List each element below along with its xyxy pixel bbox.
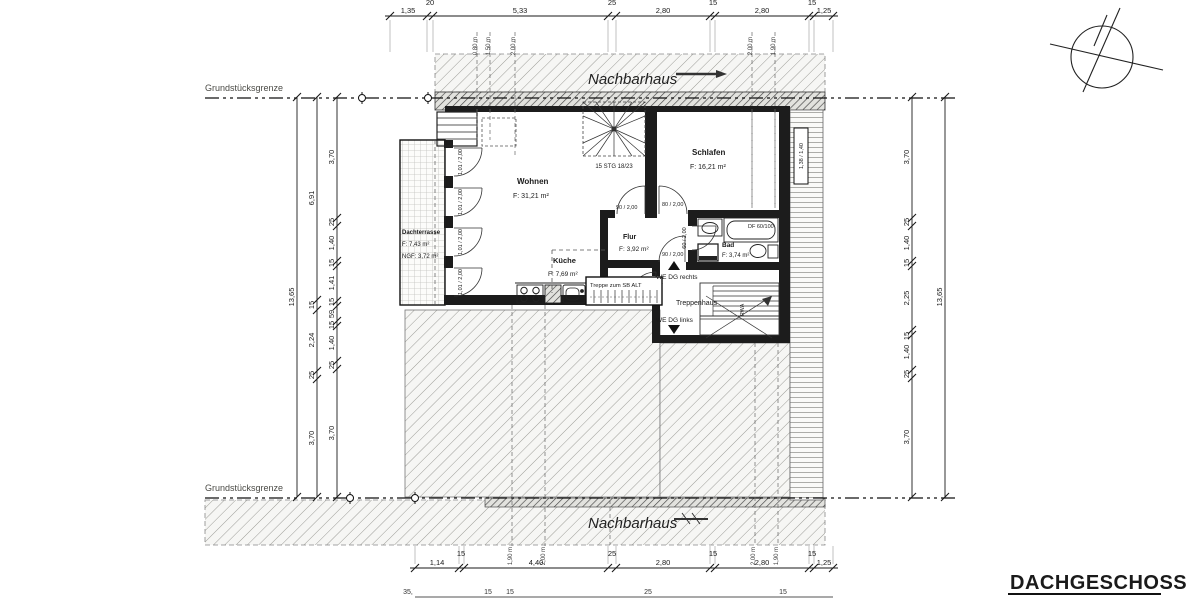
- dim-right-inner-3: 15: [902, 259, 911, 267]
- dachterrasse-area: F: 7,43 m²: [402, 242, 429, 248]
- dachterrasse-label: Dachterrasse: [402, 230, 441, 236]
- dim-bottom2-2: 15: [506, 589, 514, 596]
- dim-left-outer: 13,65: [287, 288, 296, 307]
- dim-bottom-5: 15: [709, 549, 717, 558]
- dachterrasse: Dachterrasse F: 7,43 m² NGF: 3,72 m²: [400, 140, 445, 305]
- rwa-label: RWA: [740, 303, 746, 316]
- plan-title-block: DACHGESCHOSS: [1008, 572, 1187, 594]
- dim-left-mid-3: 25: [307, 371, 316, 379]
- dim-top-8: 1,25: [817, 6, 832, 15]
- we-right-door-label: 90 / 2,00: [662, 252, 683, 258]
- dim-top-0: 1,35: [401, 6, 416, 15]
- dim-left-mid-0: 6,91: [307, 191, 316, 206]
- dim-top-7: 15: [808, 0, 816, 7]
- boundary-bottom-label: Grundstücksgrenze: [205, 483, 283, 493]
- dim-left-inner-2: 1,40: [327, 236, 336, 251]
- dim-right-inner-2: 1,40: [902, 236, 911, 251]
- height-top-0: 0,80 m: [473, 37, 479, 55]
- dim-right-inner-7: 25: [902, 370, 911, 378]
- side-window-label: 1,38 / 1,40: [799, 143, 805, 169]
- dim-right-inner-5: 15: [902, 332, 911, 340]
- dim-left-inner-3: 15: [327, 259, 336, 267]
- height-top-2: 2,00 m: [511, 37, 517, 55]
- height-top-3: 2,00 m: [748, 37, 754, 55]
- bad-door-label: 60 / 2,00: [682, 227, 688, 248]
- height-bottom-0: 1,90 m: [508, 547, 514, 565]
- dim-bottom-1: 15: [457, 549, 465, 558]
- dim-top-1: 20: [426, 0, 434, 7]
- dim-right-inner-8: 3,70: [902, 430, 911, 445]
- neighbor-building-bottom: Nachbarhaus: [205, 498, 825, 545]
- boundary-top-label: Grundstücksgrenze: [205, 83, 283, 93]
- dim-bottom2-3: 25: [644, 589, 652, 596]
- dim-bottom2-0: 35,: [403, 589, 413, 596]
- dim-bottom-8: 1,25: [817, 558, 832, 567]
- flur-area: F: 3,92 m²: [619, 246, 649, 253]
- terrace-door-label-3: 1,01 / 2,00: [458, 229, 464, 255]
- dim-left-inner-10: 3,70: [327, 426, 336, 441]
- dim-right-inner-4: 2,25: [902, 291, 911, 306]
- dim-top-3: 25: [608, 0, 616, 7]
- terrace-door-label-1: 1,01 / 2,00: [458, 149, 464, 175]
- dim-bottom-6: 2,80: [755, 558, 770, 567]
- height-bottom-3: 1,90 m: [774, 547, 780, 565]
- attic-stair-label: Treppe zum SB ALT: [590, 283, 642, 289]
- roof-strip: 1,38 / 1,40: [790, 110, 823, 500]
- flur-door-label: 90 / 2,00: [616, 205, 637, 211]
- bad-label: Bad: [722, 242, 734, 249]
- dim-top-5: 15: [709, 0, 717, 7]
- spiral-stair-label: 15 STG 18/23: [595, 164, 633, 170]
- dim-bottom2-4: 15: [779, 589, 787, 596]
- neighbor-bottom-label: Nachbarhaus: [588, 515, 678, 532]
- neighbor-top-label: Nachbarhaus: [588, 71, 678, 88]
- dim-left-inner-6: 59: [327, 310, 336, 318]
- dim-bottom-0: 1,14: [430, 558, 445, 567]
- wohnen-area: F: 31,21 m²: [513, 193, 549, 200]
- dim-left-inner-7: 15: [327, 321, 336, 329]
- terrace-door-label-2: 1,01 / 2,00: [458, 189, 464, 215]
- plan-title: DACHGESCHOSS: [1010, 572, 1187, 594]
- dim-bottom-3: 25: [608, 549, 616, 558]
- kueche-area: F: 7,69 m²: [548, 271, 578, 278]
- dim-bottom-4: 2,80: [656, 558, 671, 567]
- terrace-door-label-4: 1,01 / 2,00: [458, 269, 464, 295]
- height-top-1: 1,50 m: [486, 37, 492, 55]
- dim-top-2: 5,33: [513, 6, 528, 15]
- dim-left-mid-2: 2,24: [307, 333, 316, 348]
- dim-left-inner-4: 1,41: [327, 276, 336, 291]
- dim-right-inner-1: 25: [902, 218, 911, 226]
- dim-top-4: 2,80: [656, 6, 671, 15]
- dim-bottom-7: 15: [808, 549, 816, 558]
- bad-area: F: 3,74 m²: [722, 253, 749, 259]
- plan-drawing: Nachbarhaus Nachbarhaus 1,38 / 1,40 Dach…: [0, 0, 1200, 600]
- kueche-label: Küche: [553, 256, 576, 265]
- dim-left-inner-0: 3,70: [327, 150, 336, 165]
- dachterrasse-ngf: NGF: 3,72 m²: [402, 254, 438, 260]
- we-left-label: WE DG links: [656, 317, 694, 324]
- dim-bottom-2: 4,40: [529, 558, 544, 567]
- roof-window-label: DF 60/100: [748, 224, 774, 230]
- dim-left-mid-4: 3,70: [307, 431, 316, 446]
- flur-label: Flur: [623, 234, 636, 241]
- schlafen-label: Schlafen: [692, 148, 725, 157]
- schlafen-area: F: 16,21 m²: [690, 164, 726, 171]
- schlafen-door-label: 80 / 2,00: [662, 202, 683, 208]
- kitchen-appliance: [545, 285, 561, 303]
- wohnen-label: Wohnen: [517, 177, 549, 186]
- dim-right-outer: 13,65: [935, 288, 944, 307]
- floor-plan-sheet: Nachbarhaus Nachbarhaus 1,38 / 1,40 Dach…: [0, 0, 1200, 600]
- dim-top-6: 2,80: [755, 6, 770, 15]
- we-right-label: WE DG rechts: [656, 274, 698, 281]
- treppenhaus-label: Treppenhaus: [676, 300, 717, 307]
- attic-stair: Treppe zum SB ALT: [586, 277, 662, 305]
- dim-right-inner-6: 1,40: [902, 345, 911, 360]
- dim-left-inner-9: 25: [327, 361, 336, 369]
- dim-bottom2-1: 15: [484, 589, 492, 596]
- dim-left-inner-5: 15: [327, 298, 336, 306]
- dim-left-inner-1: 25: [327, 218, 336, 226]
- dim-right-inner-0: 3,70: [902, 150, 911, 165]
- dim-left-inner-8: 1,40: [327, 336, 336, 351]
- height-top-4: 1,90 m: [771, 37, 777, 55]
- dim-left-mid-1: 15: [307, 301, 316, 309]
